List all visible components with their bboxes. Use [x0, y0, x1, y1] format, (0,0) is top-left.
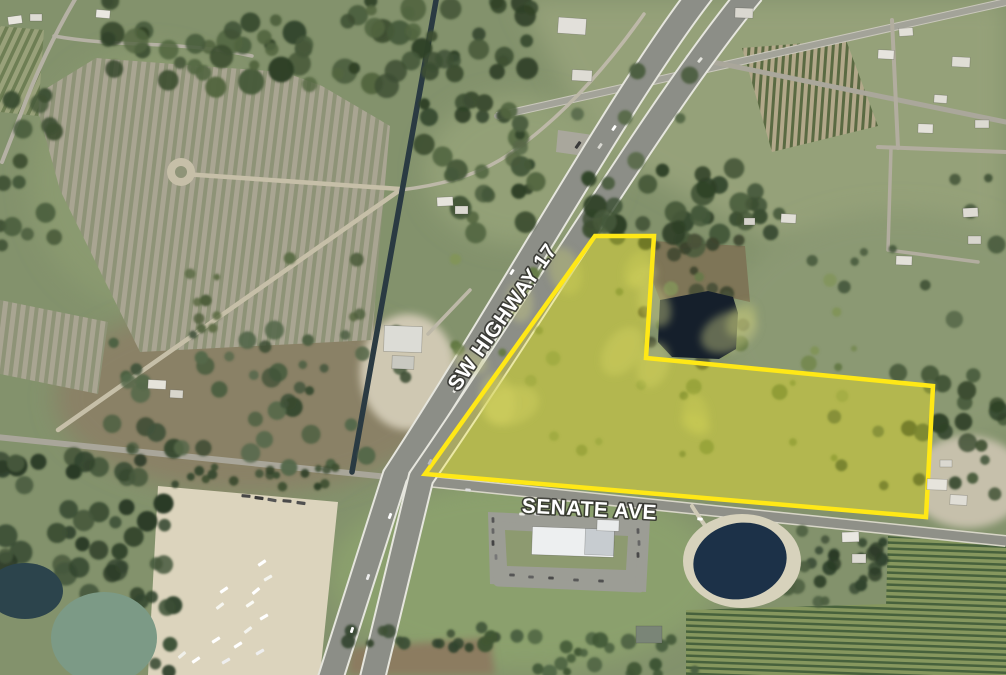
tree: [268, 57, 294, 83]
tree: [150, 557, 163, 570]
tree: [476, 110, 489, 123]
tree: [89, 541, 108, 560]
tree: [495, 47, 514, 66]
tree: [256, 431, 273, 448]
tree: [119, 499, 135, 515]
tree: [889, 245, 897, 253]
tree: [124, 527, 144, 547]
tree: [838, 281, 851, 294]
tree: [159, 599, 176, 616]
tree: [212, 311, 221, 320]
tree: [400, 372, 411, 383]
tree: [850, 257, 858, 265]
tree: [582, 172, 597, 187]
tree: [174, 57, 186, 69]
tree: [13, 119, 32, 138]
tree: [103, 415, 121, 433]
tree: [937, 424, 953, 440]
tree: [475, 185, 493, 203]
orchard-se-west: [686, 604, 888, 675]
tree: [357, 447, 375, 465]
tree: [187, 473, 195, 481]
tree: [211, 381, 227, 397]
tree: [298, 360, 307, 369]
vehicle: [495, 554, 498, 560]
tree: [681, 67, 698, 84]
tree: [515, 211, 537, 233]
tree: [185, 34, 205, 54]
tree: [587, 657, 602, 672]
tree: [476, 94, 493, 111]
tree: [528, 629, 543, 644]
tree: [355, 346, 369, 360]
tree: [447, 629, 455, 637]
tree: [432, 639, 441, 648]
tree: [484, 630, 497, 643]
tree: [185, 269, 195, 279]
tree: [920, 280, 931, 291]
building: [96, 9, 111, 18]
tree: [413, 134, 434, 155]
tree: [302, 334, 314, 346]
vehicle: [598, 580, 604, 583]
tree: [420, 108, 438, 126]
tree: [455, 107, 471, 123]
tree: [3, 91, 21, 109]
tree: [130, 363, 142, 375]
tree: [687, 234, 702, 249]
tree: [249, 370, 259, 380]
tree: [46, 229, 62, 245]
building: [455, 206, 468, 214]
building: [557, 17, 586, 35]
tree: [187, 59, 202, 74]
tree: [365, 18, 385, 38]
tree: [823, 273, 836, 286]
vehicle: [548, 577, 554, 580]
tree: [450, 340, 460, 350]
tree: [38, 88, 53, 103]
tree: [498, 348, 506, 356]
tree: [134, 454, 147, 467]
tree: [696, 178, 717, 199]
vehicle: [509, 574, 515, 577]
tree: [465, 222, 486, 243]
tree: [171, 481, 179, 489]
tree: [265, 321, 284, 340]
tree: [763, 225, 778, 240]
vehicle: [697, 517, 703, 520]
building: [963, 208, 978, 218]
tree: [751, 197, 767, 213]
tree: [851, 345, 857, 351]
building: [392, 356, 414, 370]
tree: [500, 102, 517, 119]
building: [384, 325, 423, 352]
tree: [3, 217, 22, 236]
tree: [238, 69, 264, 95]
tree: [406, 23, 422, 39]
tree: [174, 440, 190, 456]
tree: [284, 252, 296, 264]
tree: [706, 237, 719, 250]
vehicle: [528, 576, 534, 579]
building: [918, 124, 933, 134]
tree: [402, 7, 415, 20]
tree: [832, 307, 841, 316]
tree: [656, 164, 669, 177]
tree: [949, 476, 962, 489]
tree: [270, 15, 282, 27]
tree: [278, 482, 287, 491]
tree: [349, 62, 361, 74]
building: [781, 214, 796, 224]
tree: [662, 222, 685, 245]
building: [878, 50, 894, 60]
building: [934, 95, 948, 104]
tree: [592, 632, 608, 648]
aerial-map: SW HIGHWAY 17 SENATE AVE: [0, 0, 1006, 675]
vehicle: [465, 488, 471, 491]
tree: [560, 640, 573, 653]
building: [744, 218, 755, 225]
tree: [36, 203, 56, 223]
tree: [395, 636, 404, 645]
tree: [828, 550, 840, 562]
tree: [127, 444, 136, 453]
tree: [378, 626, 388, 636]
building: [8, 15, 23, 25]
tree: [194, 466, 204, 476]
tree: [262, 368, 282, 388]
tree: [105, 60, 123, 78]
tree: [13, 154, 28, 169]
tree: [489, 64, 505, 80]
tree: [980, 455, 990, 465]
tree: [315, 465, 322, 472]
tree: [975, 440, 987, 452]
tree: [197, 324, 206, 333]
tree: [695, 272, 704, 281]
tree: [159, 40, 179, 60]
tree: [320, 364, 329, 373]
tree: [322, 465, 331, 474]
tree: [153, 493, 173, 513]
vehicle: [637, 528, 640, 534]
tree: [664, 281, 678, 295]
tree: [47, 523, 67, 543]
tree: [511, 156, 531, 176]
tree: [834, 363, 842, 371]
tree: [350, 253, 364, 267]
tree: [514, 5, 536, 27]
building: [735, 8, 753, 19]
tree: [100, 22, 124, 46]
building: [927, 479, 947, 491]
tree: [41, 117, 58, 134]
tree: [475, 165, 489, 179]
orchard-se-east: [884, 536, 1006, 675]
tree: [949, 174, 960, 185]
tree: [629, 63, 645, 79]
tree: [294, 382, 306, 394]
building: [572, 69, 593, 81]
tree: [567, 654, 576, 663]
tree: [618, 110, 633, 125]
tree: [108, 338, 118, 348]
tree: [158, 519, 171, 532]
tree: [211, 464, 218, 471]
tree: [733, 235, 744, 246]
tree: [229, 476, 239, 486]
tree: [729, 212, 744, 227]
tree: [666, 634, 677, 645]
tree: [516, 57, 538, 79]
tree: [295, 36, 313, 54]
tree: [345, 418, 358, 431]
tree: [855, 579, 867, 591]
building: [896, 256, 912, 266]
tree: [21, 228, 34, 241]
vehicle: [637, 552, 640, 558]
dirt-turnaround-island: [175, 166, 187, 178]
tree: [532, 663, 543, 674]
tree: [189, 331, 197, 339]
building: [636, 626, 662, 643]
tree: [520, 34, 533, 47]
tree: [984, 174, 993, 183]
tree: [366, 5, 377, 16]
tree: [510, 629, 523, 642]
tree: [675, 113, 685, 123]
building: [852, 554, 866, 563]
tree: [814, 575, 827, 588]
tree: [213, 274, 220, 281]
tree: [635, 216, 650, 231]
tree: [690, 206, 710, 226]
tree: [115, 560, 128, 573]
tree: [266, 466, 275, 475]
tree: [280, 400, 288, 408]
tree: [69, 557, 89, 577]
tree: [340, 330, 350, 340]
tree: [241, 443, 260, 462]
tree: [129, 468, 148, 487]
tree: [580, 649, 588, 657]
tree: [946, 311, 963, 328]
building: [585, 529, 615, 556]
tree: [147, 423, 166, 442]
tree: [967, 473, 978, 484]
tree: [958, 433, 977, 452]
tree: [554, 657, 567, 670]
tree: [606, 197, 623, 214]
tree: [627, 152, 644, 169]
tree: [385, 60, 407, 82]
tree: [300, 469, 309, 478]
building: [148, 380, 166, 390]
tree: [12, 176, 25, 189]
tree: [332, 68, 344, 80]
tree: [571, 108, 584, 121]
tree: [195, 440, 211, 456]
tree: [665, 201, 687, 223]
tree: [476, 622, 487, 633]
tree: [807, 255, 818, 266]
tree: [30, 454, 46, 470]
building: [30, 14, 42, 21]
tree: [667, 248, 681, 262]
vehicle: [573, 579, 579, 582]
tree: [366, 639, 374, 647]
tree: [249, 60, 259, 70]
tree: [602, 177, 615, 190]
tree: [163, 637, 178, 652]
tree: [224, 21, 242, 39]
tree: [210, 45, 233, 68]
building: [170, 390, 183, 399]
vehicle: [492, 540, 495, 546]
tree: [265, 43, 278, 56]
tree: [988, 236, 1006, 254]
tree: [453, 638, 464, 649]
tree: [354, 309, 365, 320]
tree: [205, 77, 226, 98]
tree: [513, 140, 528, 155]
tree: [208, 323, 217, 332]
tree: [331, 463, 340, 472]
tree: [158, 70, 179, 91]
tree: [435, 50, 454, 69]
tree: [419, 98, 430, 109]
tree: [257, 30, 272, 45]
tree: [224, 351, 234, 361]
tree: [200, 295, 212, 307]
tree: [724, 158, 744, 178]
tree: [240, 13, 260, 33]
tree: [194, 313, 205, 324]
tree: [955, 413, 973, 431]
tree: [207, 470, 217, 480]
building: [437, 197, 453, 207]
building: [968, 236, 981, 244]
tree: [465, 643, 474, 652]
tree: [526, 172, 545, 191]
vehicle: [492, 517, 495, 523]
tree: [281, 459, 298, 476]
tree: [468, 39, 489, 60]
tree: [638, 175, 657, 194]
tree: [109, 516, 121, 528]
building: [842, 532, 859, 543]
tree: [239, 331, 257, 349]
tree: [302, 77, 317, 92]
tree: [248, 412, 263, 427]
tree: [52, 555, 71, 574]
vehicle: [638, 540, 641, 546]
tree: [305, 386, 314, 395]
tree: [150, 658, 162, 670]
tree: [690, 666, 699, 675]
tree: [255, 469, 264, 478]
tree: [649, 658, 662, 671]
tree: [195, 351, 208, 364]
building: [952, 57, 970, 68]
tree: [815, 546, 823, 554]
tree: [512, 115, 529, 132]
tree: [66, 464, 81, 479]
tree: [747, 183, 764, 200]
tree: [123, 28, 148, 53]
tree: [860, 248, 868, 256]
tree: [59, 500, 78, 519]
building: [940, 460, 952, 467]
tree: [112, 543, 128, 559]
building: [975, 120, 989, 128]
building: [899, 28, 914, 37]
tree: [621, 634, 636, 649]
tree: [866, 546, 881, 561]
tree: [801, 355, 817, 371]
tree: [966, 368, 980, 382]
aerial-scene: SW HIGHWAY 17 SENATE AVE: [0, 0, 1006, 675]
tree: [821, 535, 830, 544]
tree: [15, 476, 33, 494]
tree: [820, 596, 829, 605]
tree: [796, 525, 808, 537]
tree: [472, 27, 485, 40]
tree: [988, 487, 1001, 500]
tree: [450, 254, 461, 265]
tree: [340, 14, 355, 29]
building: [950, 495, 968, 506]
tree: [314, 483, 322, 491]
tree: [7, 454, 24, 471]
tree: [137, 511, 158, 532]
tree: [446, 159, 468, 181]
vehicle: [492, 528, 495, 534]
tree: [889, 364, 907, 382]
tree: [259, 340, 271, 352]
tree: [868, 567, 882, 581]
tree: [810, 346, 819, 355]
tree: [301, 425, 320, 444]
tree: [75, 537, 89, 551]
tree: [957, 381, 976, 400]
tree: [426, 31, 437, 42]
tree: [131, 383, 150, 402]
